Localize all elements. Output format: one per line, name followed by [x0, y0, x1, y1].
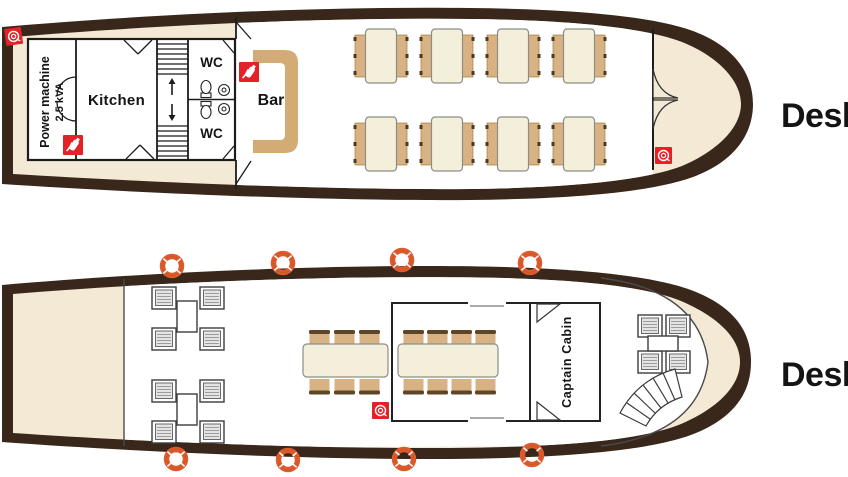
deck2-long-table-1: [303, 330, 388, 395]
deck1-hose-reel-bow: [655, 147, 672, 164]
deck1-hose-reel-stern: [4, 27, 23, 46]
power-machine-room-label: Power machine 2.5 kVA: [34, 38, 70, 166]
captain-cabin-label: Captain Cabin: [559, 302, 575, 422]
wc-bottom-label: WC: [188, 126, 235, 141]
lounge-table: [177, 394, 197, 425]
lounge-table: [177, 301, 197, 332]
deck2-title: Desk: [781, 356, 848, 395]
deck-plan-stage: Power machine 2.5 kVA Kitchen WC WC Bar …: [0, 0, 848, 477]
deck1-extinguisher-bar: [239, 62, 259, 82]
deck1-title: Desk: [781, 97, 848, 136]
wc-top-label: WC: [188, 55, 235, 70]
kitchen-label: Kitchen: [76, 92, 157, 109]
bar-label: Bar: [249, 92, 293, 110]
power-machine-label-text: Power machine: [38, 56, 52, 148]
deck2-hose-reel: [372, 402, 389, 419]
deck-plan-drawing: [0, 0, 848, 477]
power-machine-rating-text: 2.5 kVA: [54, 83, 66, 122]
deck2: [2, 251, 751, 470]
lounge-table: [648, 336, 678, 351]
